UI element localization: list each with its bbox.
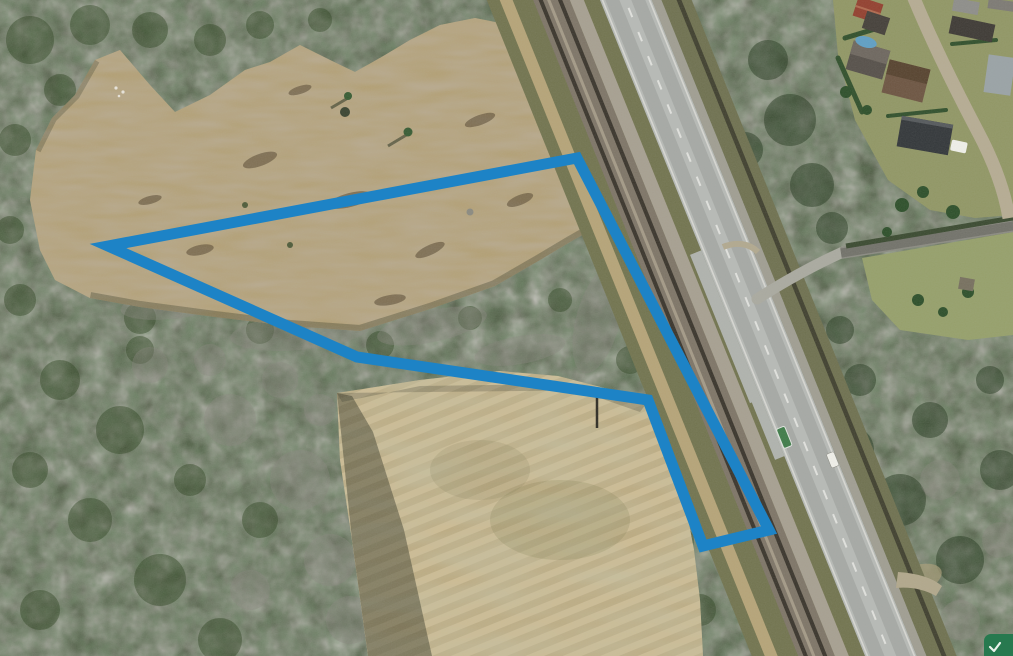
map-attribution-badge[interactable] xyxy=(984,634,1013,656)
aerial-photo-canvas xyxy=(0,0,1013,656)
photo-grain xyxy=(0,0,1013,656)
aerial-photo xyxy=(0,0,1013,656)
